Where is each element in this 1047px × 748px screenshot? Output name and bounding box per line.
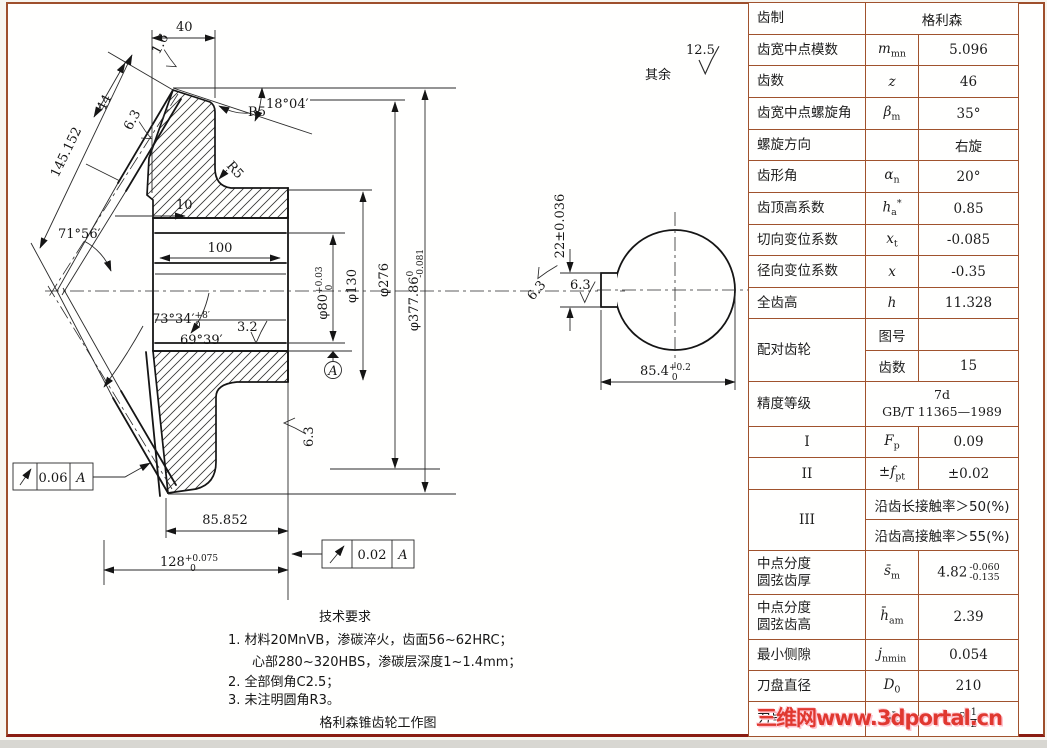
row-value: 0.09 xyxy=(919,427,1019,458)
row-label: 齿制 xyxy=(749,3,866,35)
circular-runout-icon xyxy=(330,546,344,563)
svg-text:0.02: 0.02 xyxy=(358,548,387,563)
row-value: -0.085 xyxy=(919,225,1019,256)
dim-85852-label: 85.852 xyxy=(202,513,248,528)
row-value xyxy=(919,319,1019,351)
main-section-view: 40 1.6 44 6.3 145.152 18°04′ R5 R5 10 10… xyxy=(13,20,625,600)
row-value: 11.328 xyxy=(919,288,1019,319)
gear-drawing-canvas: 40 1.6 44 6.3 145.152 18°04′ R5 R5 10 10… xyxy=(0,0,748,748)
row-label: 最小侧隙 xyxy=(749,640,866,671)
row-symbol xyxy=(866,130,919,161)
dimension-lines xyxy=(40,38,425,570)
row-value: -0.35 xyxy=(919,256,1019,288)
row-label: 精度等级 xyxy=(749,382,866,427)
tech-req-line1: 1. 材料20MnVB，渗碳淬火，齿面56~62HRC； xyxy=(228,633,513,648)
svg-text:A: A xyxy=(327,364,337,379)
dim-40-label: 40 xyxy=(176,20,193,35)
dim-100-label: 100 xyxy=(208,241,233,256)
dia-276-label: φ276 xyxy=(377,263,392,297)
row-sublabel: 齿数 xyxy=(866,351,919,382)
tech-req-line3: 2. 全部倒角C2.5； xyxy=(228,674,339,690)
row-symbol: xt xyxy=(866,225,919,256)
site-watermark: 三维网www.3dportal.cn xyxy=(756,702,1047,732)
svg-text:A: A xyxy=(75,471,85,486)
row-symbol: h xyxy=(866,288,919,319)
row-symbol: h̄am xyxy=(866,595,919,640)
rough-3-2-label: 3.2 xyxy=(237,320,258,335)
dia-80-label: φ80+0.030 xyxy=(315,266,335,320)
tech-req-line4: 3. 未注明圆角R3。 xyxy=(228,693,340,708)
rough-1-6-label: 1.6 xyxy=(149,32,172,57)
row-label: 中点分度 圆弦齿厚 xyxy=(749,551,866,595)
rough-6-3-side-a: 6.3 xyxy=(525,278,550,303)
row-label: 切向变位系数 xyxy=(749,225,866,256)
row-symbol: D0 xyxy=(866,671,919,702)
row-label: 螺旋方向 xyxy=(749,130,866,161)
r5-label: R5 xyxy=(248,105,266,120)
dim-145-label: 145.152 xyxy=(48,125,85,180)
angle-73-label: 73°34′+8′0 xyxy=(152,311,210,331)
dia-130-label: φ130 xyxy=(345,269,360,303)
dim-22-label: 22±0.036 xyxy=(553,194,568,259)
row-contact-height: 沿齿高接触率＞55(%) xyxy=(866,520,1019,551)
dim-854-label: 85.4+0.20 xyxy=(640,363,691,383)
r5-label-2: R5 xyxy=(223,159,246,182)
drawing-sheet-page: 40 1.6 44 6.3 145.152 18°04′ R5 R5 10 10… xyxy=(0,0,1047,748)
row-label: II xyxy=(749,458,866,490)
dim-10-label: 10 xyxy=(176,198,193,213)
angle-18-label: 18°04′ xyxy=(266,97,309,112)
row-symbol: ha* xyxy=(866,193,919,225)
row-symbol: z xyxy=(866,66,919,98)
row-symbol: mmn xyxy=(866,35,919,66)
row-contact-length: 沿齿长接触率＞50(%) xyxy=(866,490,1019,520)
row-label: 齿宽中点模数 xyxy=(749,35,866,66)
row-value: 右旋 xyxy=(919,130,1019,161)
row-value: 20° xyxy=(919,161,1019,193)
drawing-caption: 格利森锥齿轮工作图 xyxy=(319,715,436,731)
row-value: 格利森 xyxy=(866,3,1019,35)
row-value-accuracy: 7dGB/T 11365—1989 xyxy=(866,382,1019,427)
row-label: 齿形角 xyxy=(749,161,866,193)
rough-6-3-side-b: 6.3 xyxy=(570,278,591,293)
dim-128-label: 128+0.0750 xyxy=(160,554,218,574)
row-value: 35° xyxy=(919,98,1019,130)
row-symbol: βm xyxy=(866,98,919,130)
row-label: 刀盘直径 xyxy=(749,671,866,702)
runout-frame-2: 0.02 A xyxy=(292,540,414,568)
runout-frame-1: 0.06 A xyxy=(13,463,150,490)
row-label: 齿宽中点螺旋角 xyxy=(749,98,866,130)
row-label-mating-gear: 配对齿轮 xyxy=(749,319,866,382)
row-symbol: jnmin xyxy=(866,640,919,671)
rough-6-3b-label: 6.3 xyxy=(302,426,317,447)
row-symbol: x xyxy=(866,256,919,288)
row-value: 0.054 xyxy=(919,640,1019,671)
row-value: 5.096 xyxy=(919,35,1019,66)
row-symbol: s̄m xyxy=(866,551,919,595)
row-value: 15 xyxy=(919,351,1019,382)
row-symbol: ±fpt xyxy=(866,458,919,490)
row-sublabel: 图号 xyxy=(866,319,919,351)
row-label: 齿数 xyxy=(749,66,866,98)
row-label: I xyxy=(749,427,866,458)
row-label: 中点分度 圆弦齿高 xyxy=(749,595,866,640)
rest-surfaces-label: 其余 xyxy=(645,67,671,83)
gear-parameter-table: 齿制 格利森 齿宽中点模数 mmn 5.096 齿数 z 46 齿宽中点螺旋角 … xyxy=(748,2,1019,737)
row-label: III xyxy=(749,490,866,551)
datum-a-symbol: A xyxy=(325,351,342,379)
rest-roughness-value: 12.5 xyxy=(686,43,715,58)
svg-text:A: A xyxy=(397,548,407,563)
row-label: 齿顶高系数 xyxy=(749,193,866,225)
default-roughness-note: 其余 12.5 xyxy=(645,43,719,83)
row-value: 4.82-0.060-0.135 xyxy=(919,551,1019,595)
row-value: 0.85 xyxy=(919,193,1019,225)
angle-69-label: 69°39′ xyxy=(180,333,223,348)
row-value: 46 xyxy=(919,66,1019,98)
rough-6-3-label: 6.3 xyxy=(121,108,144,133)
dia-377-label: φ377.860-0.081 xyxy=(406,249,426,331)
row-value: 210 xyxy=(919,671,1019,702)
tech-req-line2: 心部280~320HBS，渗碳层深度1~1.4mm； xyxy=(252,654,521,670)
row-symbol: αn xyxy=(866,161,919,193)
lower-rim-hatched xyxy=(153,351,288,493)
tech-req-title: 技术要求 xyxy=(319,610,371,625)
angle-71-label: 71°56′ xyxy=(58,227,101,242)
row-value: ±0.02 xyxy=(919,458,1019,490)
row-label: 全齿高 xyxy=(749,288,866,319)
row-symbol: Fp xyxy=(866,427,919,458)
svg-text:0.06: 0.06 xyxy=(39,471,68,486)
row-value: 2.39 xyxy=(919,595,1019,640)
circular-runout-icon xyxy=(20,469,31,485)
row-label: 径向变位系数 xyxy=(749,256,866,288)
side-keyway-view: 22±0.036 6.3 6.3 85.4+0.20 xyxy=(525,194,748,390)
technical-requirements: 技术要求 1. 材料20MnVB，渗碳淬火，齿面56~62HRC； 心部280~… xyxy=(228,610,521,731)
